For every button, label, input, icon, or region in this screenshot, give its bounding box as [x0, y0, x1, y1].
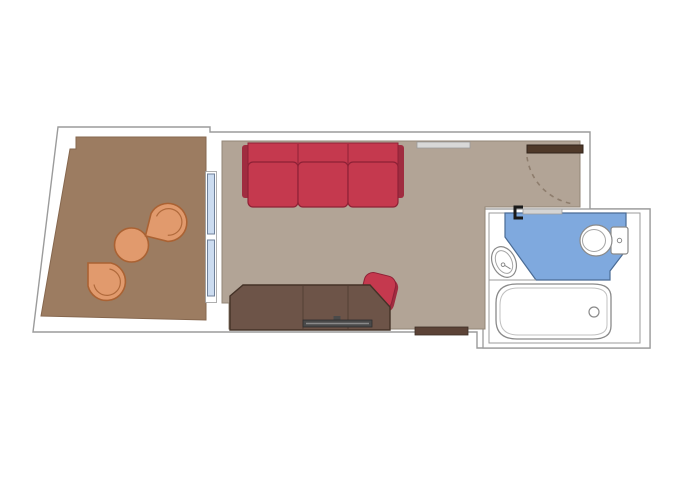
toilet	[580, 225, 628, 256]
toilet-tank	[611, 227, 628, 254]
bathroom	[487, 207, 628, 339]
sofa-backrest	[248, 143, 398, 164]
round-table	[115, 228, 149, 262]
door-leaf	[527, 145, 583, 153]
lounge-chair-2	[88, 263, 125, 300]
glass-panel-upper	[208, 174, 215, 234]
balcony-glass-door	[206, 172, 217, 303]
bathtub-rim	[496, 284, 611, 339]
sideboard	[415, 327, 468, 335]
bathtub	[496, 284, 611, 339]
wall-shelf	[417, 142, 470, 148]
sofa	[242, 143, 404, 207]
floor-plan-page	[0, 0, 680, 491]
sofa-cushion	[298, 162, 348, 207]
sofa-cushion	[248, 162, 298, 207]
glass-panel-lower	[208, 240, 215, 296]
floor-plan	[0, 0, 680, 491]
bathroom-sliding-door	[523, 209, 562, 214]
sofa-cushion	[348, 162, 398, 207]
